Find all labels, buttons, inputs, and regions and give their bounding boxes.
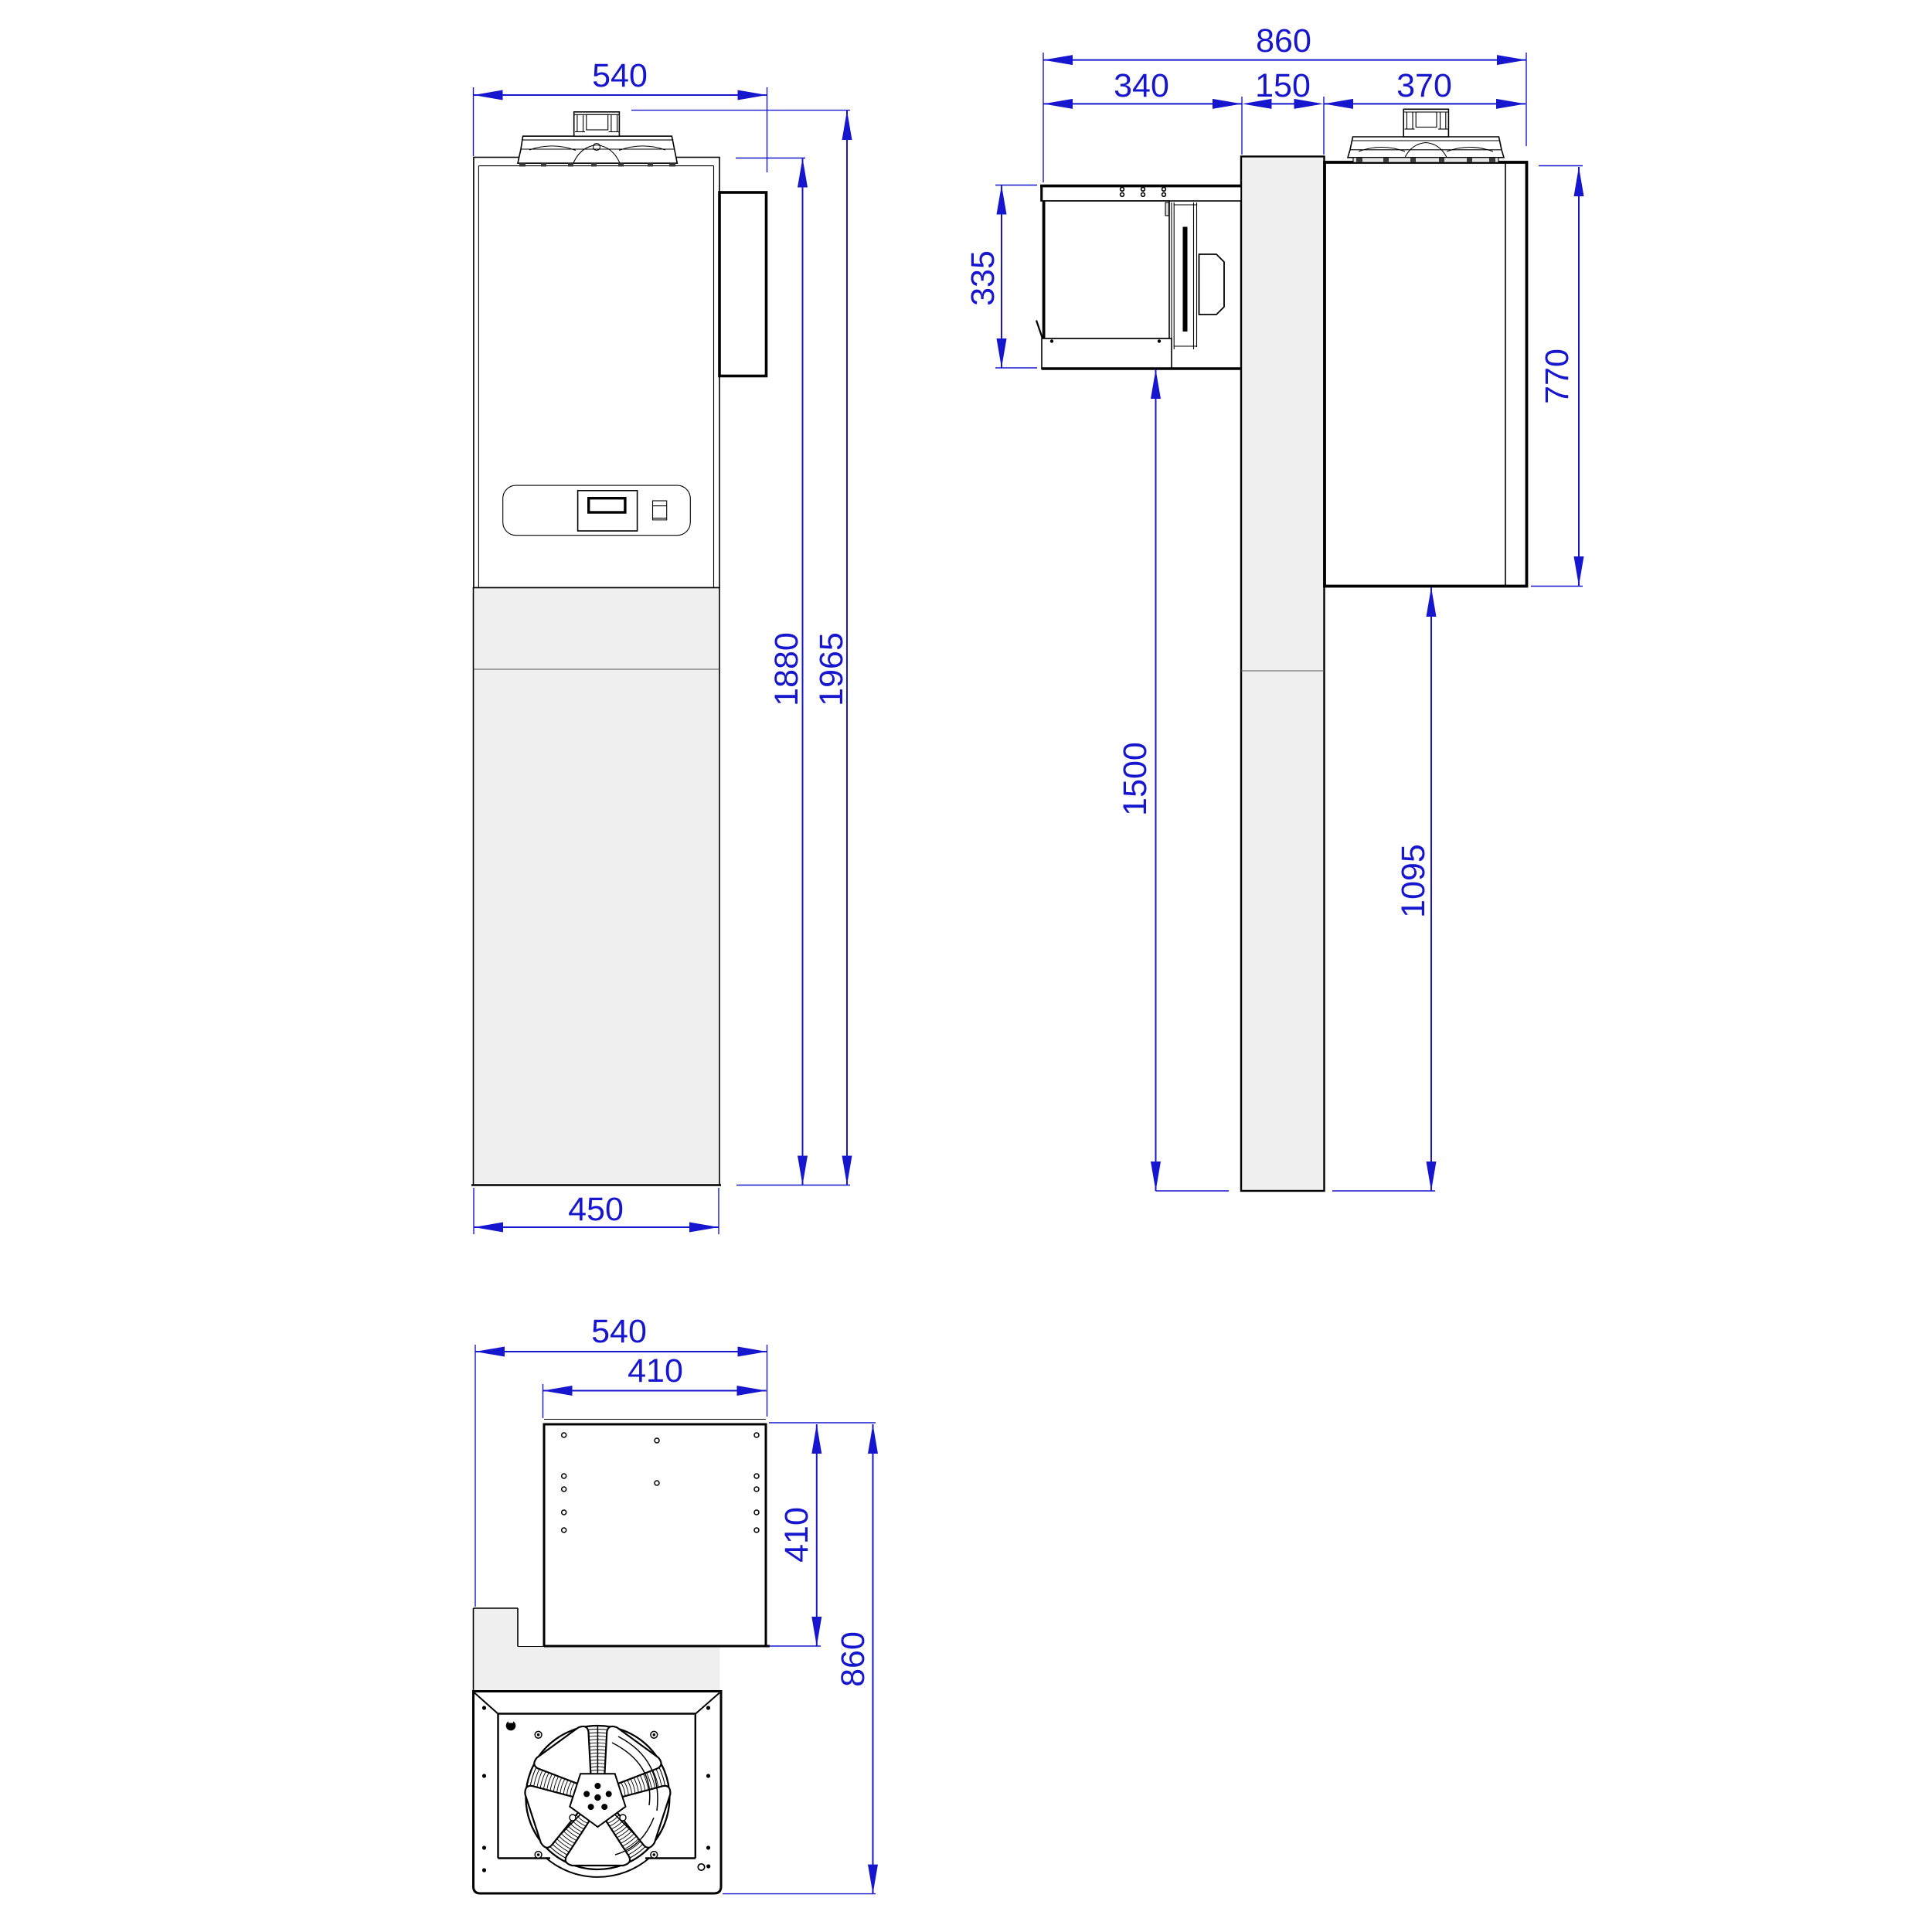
svg-text:1500: 1500 — [1117, 742, 1154, 816]
svg-text:450: 450 — [568, 1191, 624, 1228]
svg-text:1880: 1880 — [768, 632, 805, 706]
svg-text:1965: 1965 — [813, 632, 850, 706]
svg-text:410: 410 — [778, 1507, 815, 1563]
svg-text:340: 340 — [1114, 67, 1169, 104]
svg-text:540: 540 — [591, 1313, 647, 1350]
svg-text:410: 410 — [628, 1352, 683, 1389]
svg-text:370: 370 — [1396, 67, 1452, 104]
svg-text:150: 150 — [1255, 67, 1311, 104]
svg-text:860: 860 — [1256, 22, 1311, 60]
svg-text:335: 335 — [964, 250, 1002, 306]
svg-text:770: 770 — [1539, 349, 1576, 404]
svg-text:1095: 1095 — [1395, 844, 1432, 918]
svg-text:860: 860 — [835, 1631, 872, 1687]
svg-text:540: 540 — [592, 57, 648, 94]
